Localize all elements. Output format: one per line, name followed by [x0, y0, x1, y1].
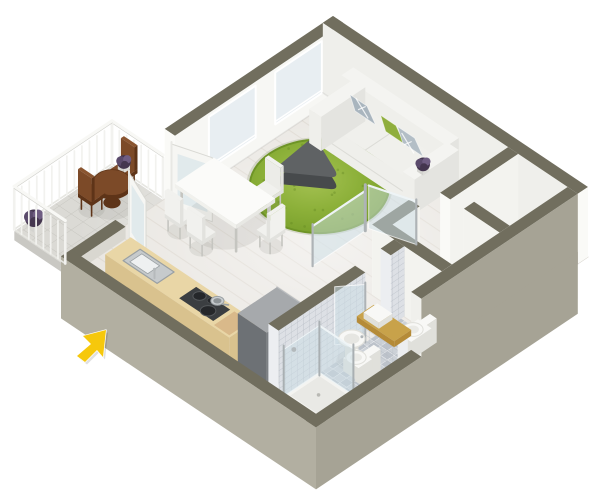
floorplan-3d-render: 3D isometric dollhouse-style floor plan … [0, 0, 600, 497]
floorplan-svg [0, 0, 600, 497]
cursor-arrow [77, 330, 108, 365]
